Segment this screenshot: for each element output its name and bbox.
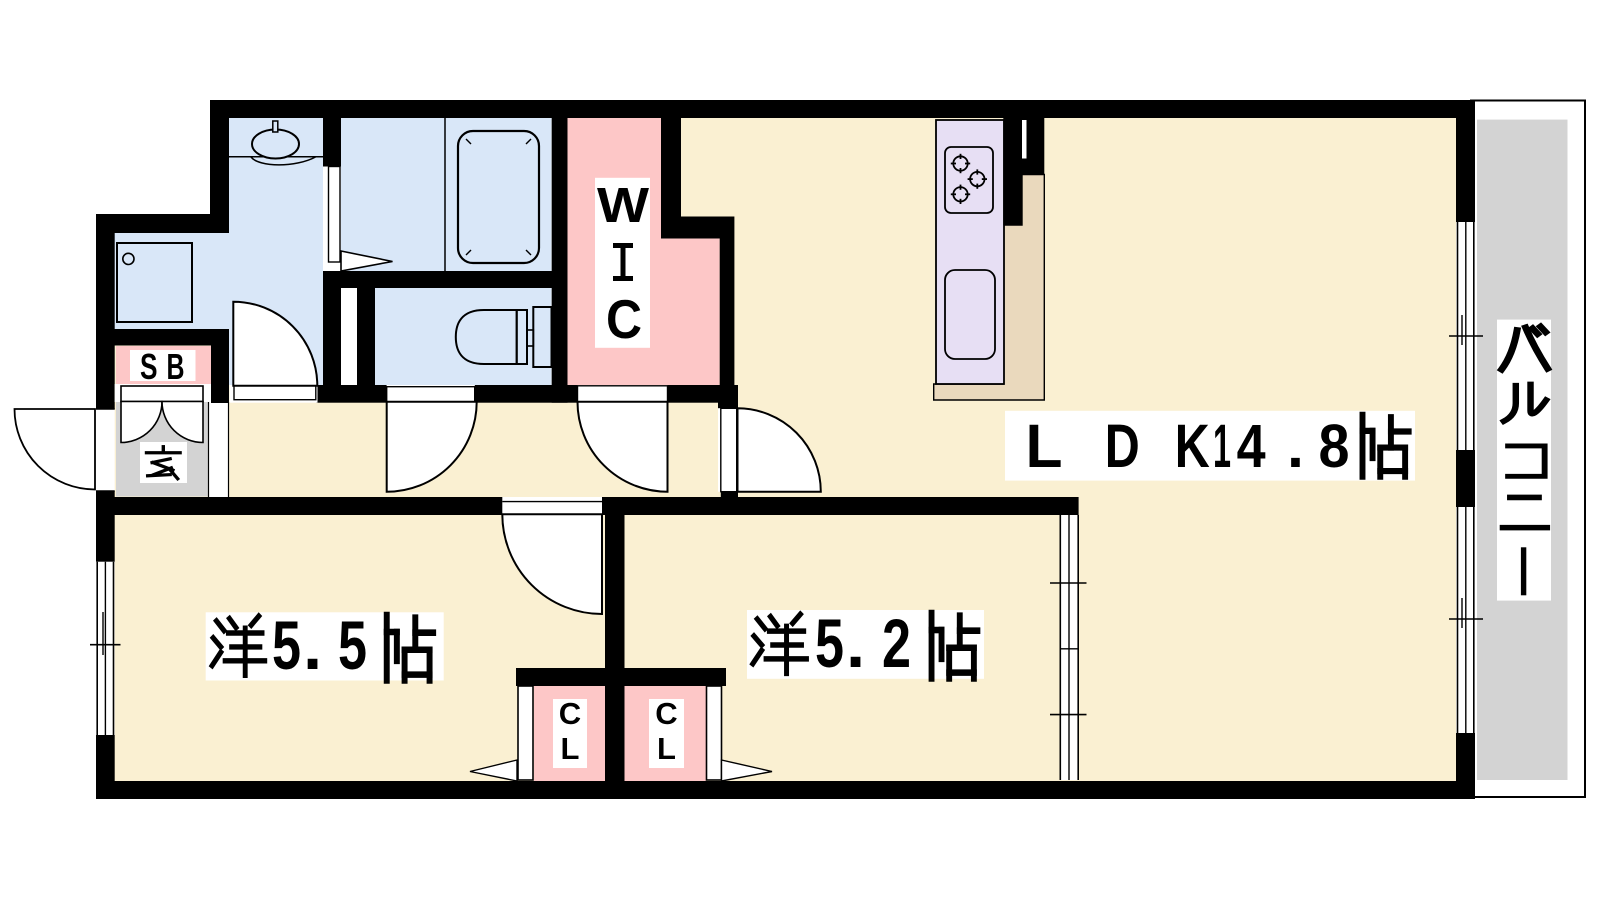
svg-text:D: D bbox=[1105, 412, 1140, 480]
svg-text:4: 4 bbox=[1237, 412, 1266, 480]
svg-text:1: 1 bbox=[1213, 412, 1231, 480]
svg-text:W: W bbox=[597, 179, 650, 233]
svg-text:2: 2 bbox=[882, 605, 911, 682]
svg-text:K: K bbox=[1175, 412, 1210, 480]
svg-text:L: L bbox=[657, 731, 676, 766]
svg-text:5: 5 bbox=[815, 605, 844, 682]
svg-text:L: L bbox=[561, 731, 580, 766]
svg-text:8: 8 bbox=[1319, 412, 1350, 480]
svg-text:5: 5 bbox=[338, 607, 367, 684]
svg-text:.: . bbox=[1287, 412, 1304, 480]
svg-text:C: C bbox=[559, 696, 581, 731]
svg-text:B: B bbox=[167, 346, 185, 387]
svg-text:.: . bbox=[303, 607, 322, 684]
svg-text:C: C bbox=[606, 288, 642, 350]
svg-text:S: S bbox=[140, 346, 158, 387]
svg-text:C: C bbox=[655, 696, 677, 731]
svg-text:.: . bbox=[846, 605, 865, 682]
svg-text:L: L bbox=[1026, 412, 1063, 480]
svg-text:5: 5 bbox=[272, 607, 301, 684]
